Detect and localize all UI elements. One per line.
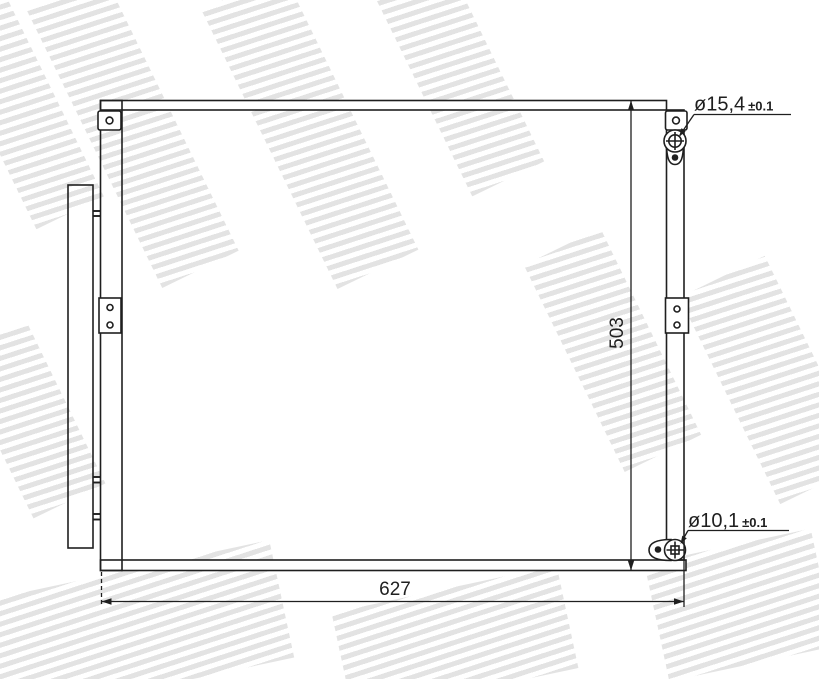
top-header-tube: [101, 101, 667, 111]
bottom-fitting-callout: ø10,1±0.1: [681, 510, 790, 544]
width-dimension-label: 627: [379, 579, 411, 600]
bottom-fitting-label: ø10,1±0.1: [688, 510, 767, 532]
height-dimension: 503: [607, 101, 634, 571]
bottom-header-tube: [101, 560, 687, 571]
outlet-fitting: [649, 540, 686, 561]
height-dimension-label: 503: [607, 317, 628, 349]
fitting-pin: [655, 546, 662, 553]
mounting-tab-top-right: [666, 111, 688, 130]
receiver-drier-tube: [667, 110, 685, 560]
arrowhead-right: [674, 598, 684, 604]
condenser-technical-drawing: 503 627 ø15,4±0.1 ø10,1±0.1: [0, 0, 819, 679]
left-side-plate: [68, 185, 101, 548]
left-side-tube: [101, 101, 123, 571]
side-plate-outline: [68, 185, 93, 548]
arrowhead-left: [102, 598, 112, 604]
width-dimension: 627: [102, 545, 685, 607]
top-fitting-label: ø15,4±0.1: [694, 94, 773, 116]
top-fitting-callout: ø15,4±0.1: [679, 94, 791, 138]
side-plate-ticks: [93, 211, 101, 520]
condenser-body: [101, 101, 687, 571]
condenser-drawing-svg: 503 627 ø15,4±0.1 ø10,1±0.1: [0, 0, 819, 679]
mounting-tab-top-left: [98, 111, 121, 130]
mounting-bracket-right: [666, 298, 689, 333]
mounting-bracket-left: [99, 298, 121, 333]
fitting-pin: [672, 154, 679, 161]
